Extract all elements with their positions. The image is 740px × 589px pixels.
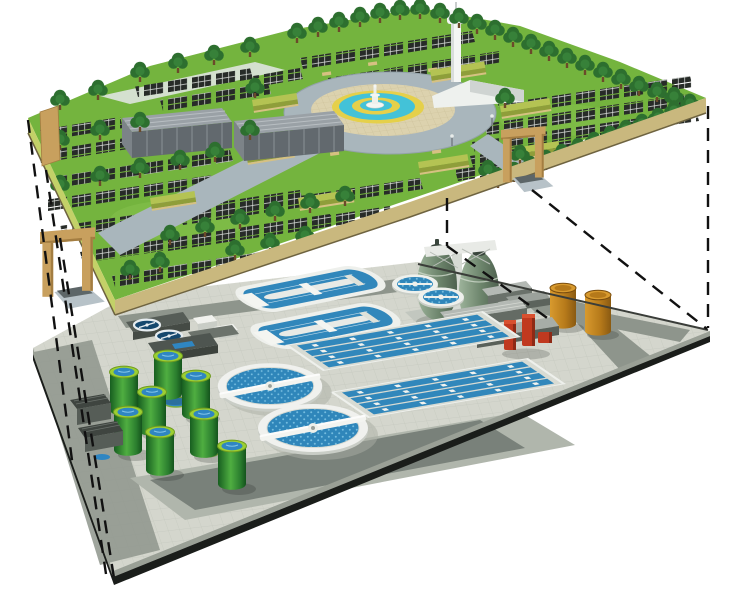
facility-cutaway-illustration (0, 0, 740, 589)
corner-wall-block (40, 106, 60, 166)
